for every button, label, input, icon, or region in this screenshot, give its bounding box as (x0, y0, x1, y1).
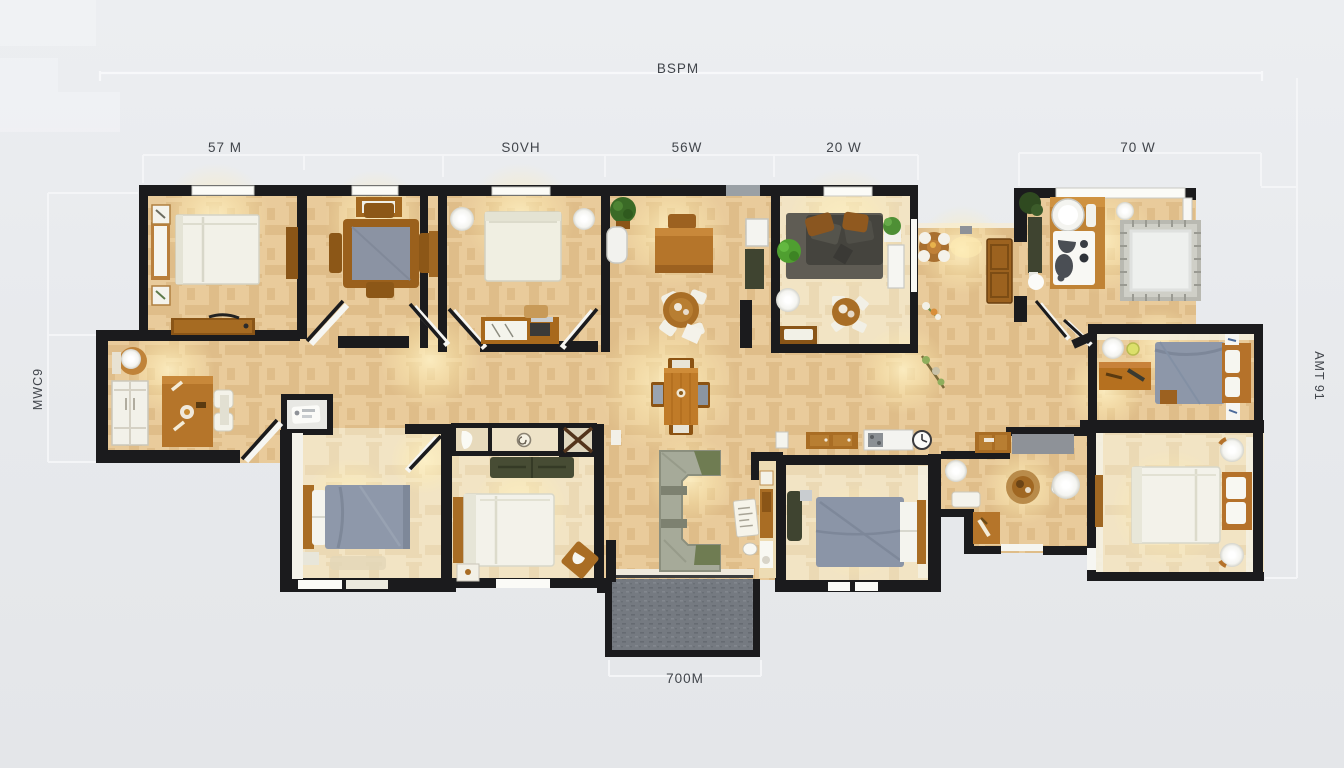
svg-text:56W: 56W (672, 140, 703, 155)
svg-text:MWC9: MWC9 (31, 368, 45, 410)
svg-text:S0VH: S0VH (501, 140, 540, 155)
svg-text:BSPM: BSPM (657, 61, 699, 76)
svg-text:20 W: 20 W (826, 140, 862, 155)
svg-text:70 W: 70 W (1120, 140, 1156, 155)
svg-text:57 M: 57 M (208, 140, 242, 155)
svg-text:700M: 700M (666, 671, 704, 686)
svg-text:AMT 91: AMT 91 (1312, 351, 1326, 401)
